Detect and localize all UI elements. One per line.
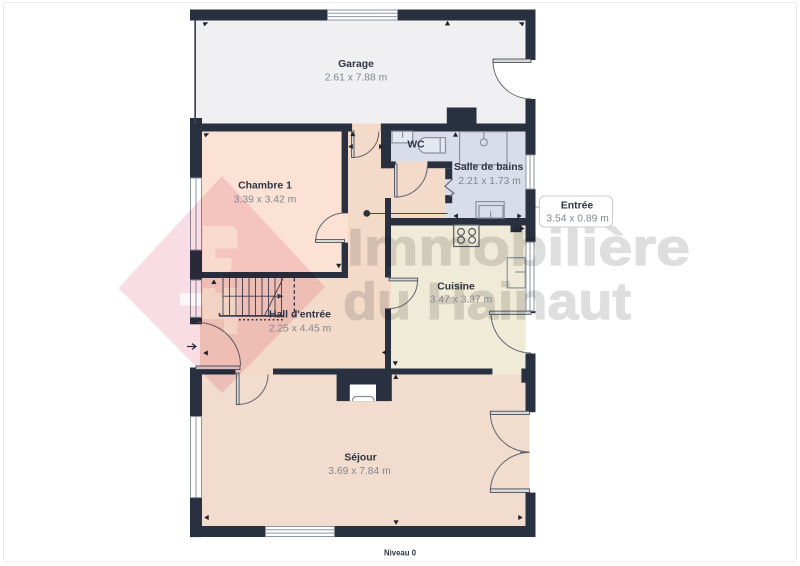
svg-text:Salle de bains: Salle de bains (454, 162, 524, 173)
svg-text:WC: WC (407, 140, 425, 151)
svg-text:Hall d'entrée: Hall d'entrée (269, 310, 331, 321)
svg-text:3.47 x 3.37 m: 3.47 x 3.37 m (430, 295, 492, 306)
svg-text:Immobilière: Immobilière (347, 219, 690, 277)
svg-text:Cuisine: Cuisine (437, 282, 475, 293)
svg-text:3.39 x 3.42 m: 3.39 x 3.42 m (234, 194, 296, 205)
svg-text:3.69 x 7.84 m: 3.69 x 7.84 m (328, 466, 390, 477)
svg-text:Séjour: Séjour (344, 453, 376, 464)
svg-text:Chambre 1: Chambre 1 (238, 181, 292, 192)
svg-text:2.21 x 1.73 m: 2.21 x 1.73 m (458, 176, 520, 187)
svg-text:Entrée: Entrée (561, 200, 594, 211)
svg-text:2.25 x 4.45 m: 2.25 x 4.45 m (269, 324, 331, 335)
svg-text:3.54 x 0.89 m: 3.54 x 0.89 m (546, 214, 608, 225)
svg-text:Garage: Garage (338, 59, 374, 70)
svg-text:2.61 x 7.88 m: 2.61 x 7.88 m (325, 73, 387, 84)
svg-text:Niveau 0: Niveau 0 (384, 549, 417, 558)
